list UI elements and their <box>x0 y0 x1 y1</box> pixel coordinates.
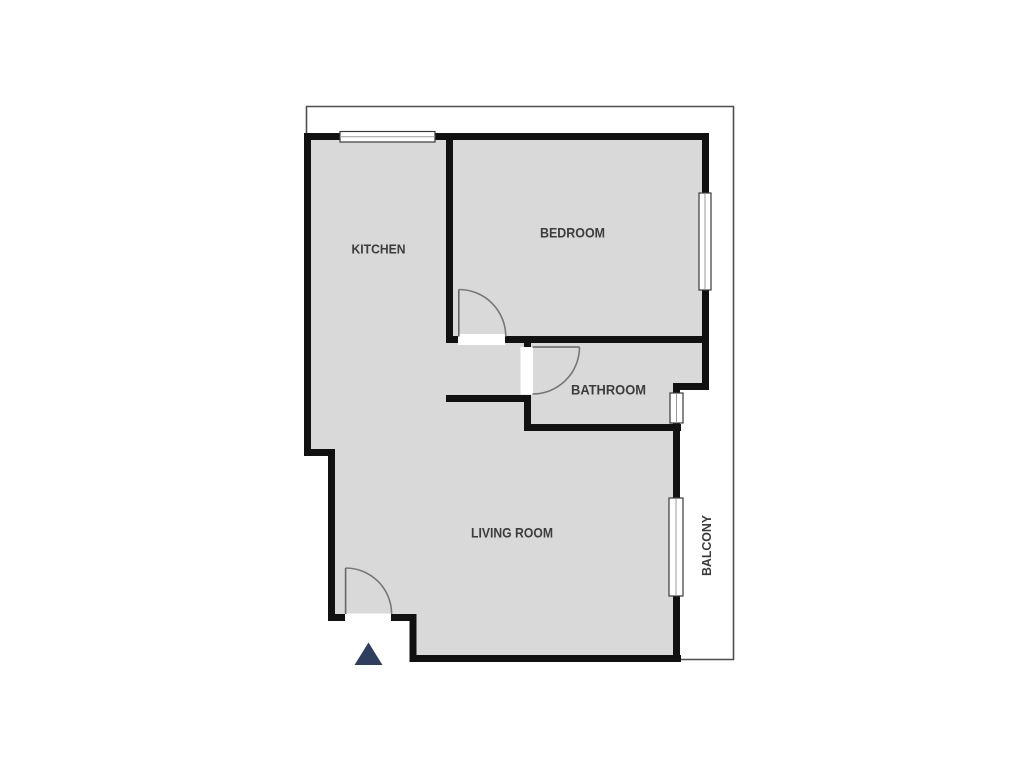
svg-text:BALCONY: BALCONY <box>699 515 714 576</box>
svg-text:BATHROOM: BATHROOM <box>571 383 646 398</box>
svg-text:LIVING ROOM: LIVING ROOM <box>471 525 553 541</box>
svg-text:KITCHEN: KITCHEN <box>352 242 406 257</box>
svg-text:BEDROOM: BEDROOM <box>540 225 605 241</box>
